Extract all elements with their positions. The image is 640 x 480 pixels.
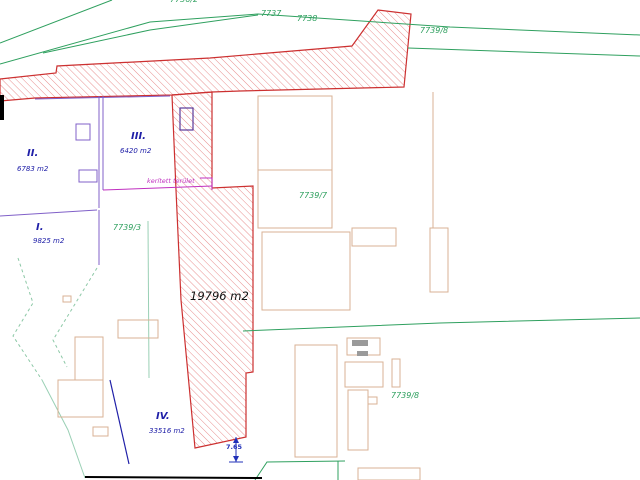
building (258, 96, 332, 228)
boundary-mid-vertical (148, 221, 149, 378)
edge-building-fill (0, 95, 4, 120)
building (295, 345, 337, 457)
building-roof-detail (357, 351, 368, 356)
cadastral-map: 7736/2 7737 7738 7739/8 7739/7 7739/3 77… (0, 0, 640, 480)
road-edge-right (408, 48, 640, 56)
building (262, 232, 350, 310)
building (118, 320, 158, 338)
building (358, 468, 420, 480)
zone1-north-boundary (0, 210, 97, 216)
building (352, 228, 396, 246)
building (348, 390, 368, 450)
building (345, 362, 383, 387)
road-edge-inner (43, 15, 258, 53)
boundary-bottom-center (255, 461, 345, 480)
hatched-top-strip (0, 10, 411, 101)
zone2-notch-building-1 (76, 124, 90, 140)
zone4-west-boundary (110, 380, 129, 464)
dashed-boundary-west-1 (13, 258, 42, 380)
dimension-arrow-down (233, 456, 239, 462)
building (63, 296, 71, 302)
boundary-southwest-curve (42, 380, 85, 478)
building (58, 380, 103, 417)
hatched-vertical-strip (172, 92, 253, 448)
zone2-notch-building-2 (79, 170, 97, 182)
building (430, 228, 448, 292)
building-roof-detail (352, 340, 368, 346)
road-edge-upper (0, 0, 112, 43)
violet-parcel-boundaries (0, 96, 193, 265)
map-drawing (0, 0, 640, 480)
building (392, 359, 400, 387)
building (368, 397, 377, 404)
bottom-boundary-line (85, 477, 262, 478)
hatched-parcels (0, 10, 411, 448)
building (93, 427, 108, 436)
parcel-7739-7-south-boundary (243, 318, 640, 331)
building (75, 337, 103, 380)
